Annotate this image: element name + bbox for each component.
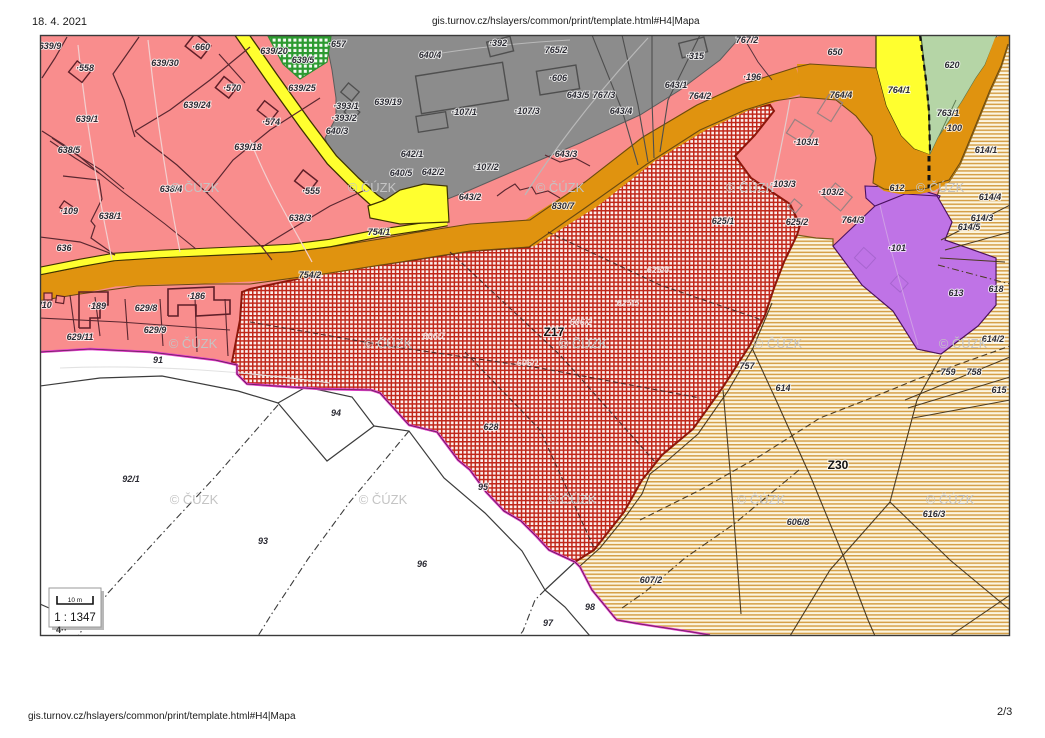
svg-text:757: 757 [739,361,755,371]
svg-text:© ČÚZK: © ČÚZK [548,492,597,507]
svg-text:606/8: 606/8 [787,517,810,527]
svg-text:640/5: 640/5 [390,168,414,178]
svg-text:638/1: 638/1 [99,211,122,221]
svg-text:643/4: 643/4 [610,106,633,116]
svg-text:© ČÚZK: © ČÚZK [754,336,803,351]
svg-text:© ČÚZK: © ČÚZK [559,336,608,351]
svg-text:642/1: 642/1 [401,149,424,159]
svg-text:10 m: 10 m [68,597,82,604]
svg-text:629/8: 629/8 [135,303,158,313]
svg-text:764/2: 764/2 [689,91,712,101]
svg-text:607/2: 607/2 [640,575,663,585]
svg-text:764/1: 764/1 [888,85,911,95]
svg-text:·570: ·570 [223,83,241,93]
svg-text:639/1: 639/1 [76,114,99,124]
svg-text:639/25: 639/25 [288,83,317,93]
svg-text:4··: 4·· [56,625,67,635]
svg-text:625/5: 625/5 [617,298,641,308]
svg-text:614: 614 [775,383,790,393]
svg-text:97: 97 [543,618,554,628]
svg-text:© ČÚZK: © ČÚZK [737,492,786,507]
svg-text:615: 615 [991,385,1007,395]
svg-text:765/2: 765/2 [545,45,568,55]
svg-text:·555: ·555 [302,186,321,196]
svg-text:·606: ·606 [549,73,568,83]
svg-text:94: 94 [331,408,341,418]
svg-text:·100: ·100 [944,123,962,133]
svg-text:·196: ·196 [743,72,762,82]
svg-text:629/11: 629/11 [67,332,94,342]
svg-text:758: 758 [966,367,981,377]
svg-text:·186: ·186 [187,291,206,301]
svg-text:625/1: 625/1 [712,216,735,226]
svg-text:·558: ·558 [76,63,94,73]
svg-text:© ČÚZK: © ČÚZK [359,492,408,507]
svg-text:© ČÚZK: © ČÚZK [364,336,413,351]
svg-text:640/3: 640/3 [326,126,349,136]
svg-text:·393/1: ·393/1 [333,101,359,111]
svg-text:606/1: 606/1 [517,358,540,368]
svg-text:18. 4. 2021: 18. 4. 2021 [32,16,87,28]
svg-text:763/1: 763/1 [937,108,960,118]
svg-text:96: 96 [417,559,428,569]
svg-text:614/5: 614/5 [958,222,982,232]
svg-text:643/1: 643/1 [665,80,688,90]
svg-text:·103/2: ·103/2 [818,187,844,197]
svg-text:·393/2: ·393/2 [331,113,357,123]
svg-text:·189: ·189 [88,301,106,311]
svg-text:·103/1: ·103/1 [793,137,819,147]
svg-text:764/4: 764/4 [830,90,853,100]
svg-text:·574: ·574 [262,117,280,127]
svg-text:639/24: 639/24 [183,100,211,110]
svg-text:gis.turnov.cz/hslayers/common/: gis.turnov.cz/hslayers/common/print/temp… [432,16,700,27]
svg-text:639/19: 639/19 [374,97,402,107]
svg-text:638/3: 638/3 [289,213,312,223]
svg-text:767/3: 767/3 [593,90,616,100]
svg-text:830/7: 830/7 [552,201,576,211]
svg-text:613: 613 [948,288,963,298]
svg-text:·315: ·315 [686,51,705,61]
svg-text:614/4: 614/4 [979,192,1002,202]
svg-text:© ČÚZK: © ČÚZK [939,336,988,351]
svg-text:764/3: 764/3 [842,215,865,225]
svg-text:© ČÚZK: © ČÚZK [916,180,965,195]
svg-text:Z30: Z30 [828,458,849,472]
svg-text:606/7: 606/7 [423,331,447,341]
svg-text:642/2: 642/2 [422,167,445,177]
svg-text:93: 93 [258,536,268,546]
svg-text:639/9: 639/9 [39,41,62,51]
svg-text:616/3: 616/3 [923,509,946,519]
svg-text:© ČÚZK: © ČÚZK [348,180,397,195]
svg-text:·657: ·657 [328,39,347,49]
svg-text:·107/1: ·107/1 [451,107,477,117]
svg-text:© ČÚZK: © ČÚZK [926,492,975,507]
svg-text:© ČÚZK: © ČÚZK [536,180,585,195]
svg-text:© ČÚZK: © ČÚZK [169,336,218,351]
svg-text:767/2: 767/2 [736,35,759,45]
svg-text:·107/2: ·107/2 [473,162,499,172]
svg-text:1 : 1347: 1 : 1347 [54,612,96,624]
svg-text:95: 95 [478,482,489,492]
svg-text:© ČÚZK: © ČÚZK [726,180,775,195]
svg-text:638/5: 638/5 [58,145,82,155]
svg-text:614/1: 614/1 [975,145,998,155]
svg-text:639/5: 639/5 [292,55,316,65]
svg-text:·392: ·392 [489,38,507,48]
svg-text:643/3: 643/3 [555,149,578,159]
svg-text:639/30: 639/30 [151,58,179,68]
svg-text:643/5: 643/5 [567,90,591,100]
svg-text:92/1: 92/1 [122,474,140,484]
svg-text:·109: ·109 [60,206,78,216]
svg-text:625/4: 625/4 [647,265,670,275]
svg-text:gis.turnov.cz/hslayers/common/: gis.turnov.cz/hslayers/common/print/temp… [28,711,296,722]
svg-text:618: 618 [988,284,1003,294]
svg-text:612: 612 [889,183,904,193]
svg-text:639/20: 639/20 [260,46,288,56]
svg-text:606/2: 606/2 [570,317,593,327]
svg-text:© ČÚZK: © ČÚZK [170,492,219,507]
svg-text:759: 759 [940,367,955,377]
svg-text:·107/3: ·107/3 [514,106,540,116]
svg-text:625/2: 625/2 [786,217,809,227]
svg-text:643/2: 643/2 [459,192,482,202]
svg-text:© ČÚZK: © ČÚZK [171,180,220,195]
svg-text:628: 628 [483,422,498,432]
svg-text:640/4: 640/4 [419,50,442,60]
svg-text:650: 650 [827,47,842,57]
svg-text:629/9: 629/9 [144,325,167,335]
svg-text:2/3: 2/3 [997,706,1012,718]
svg-text:91: 91 [153,355,163,365]
svg-text:754/2: 754/2 [299,270,322,280]
svg-text:·101: ·101 [888,243,906,253]
svg-text:754/1: 754/1 [368,227,391,237]
svg-text:620: 620 [944,60,959,70]
svg-text:639/18: 639/18 [234,142,262,152]
svg-text:98: 98 [585,602,595,612]
svg-text:636: 636 [56,243,72,253]
svg-text:·660: ·660 [192,42,210,52]
